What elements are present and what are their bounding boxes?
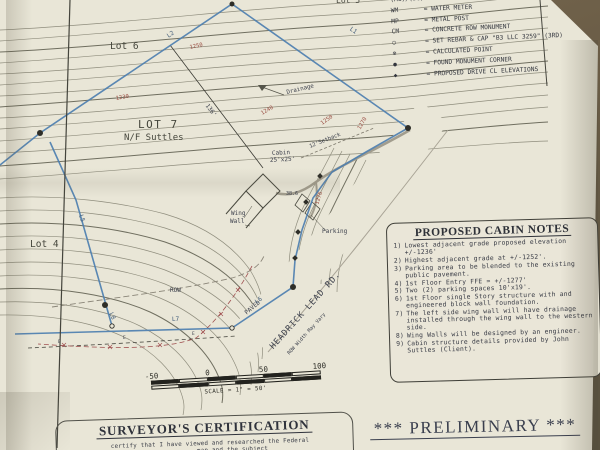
calculated-point-icon: ⊗ — [389, 50, 426, 58]
map-label-row: ROW — [170, 288, 181, 294]
tick-label: 100 — [312, 361, 326, 371]
map-label-lot-7: LOT 7 — [138, 119, 179, 130]
preliminary-stamp: *** PRELIMINARY *** — [356, 415, 594, 440]
legend-symbol: CM — [388, 28, 425, 36]
photographed-survey-plat: Lot 5 Lot 6 LOT 7 N/F Suttles Lot 4 Drai… — [0, 0, 600, 450]
map-label-lot-5: Lot 5 — [336, 0, 360, 5]
legend-label: = PROPOSED DRIVE CL ELEVATIONS — [426, 64, 595, 78]
map-label-lot-6: Lot 6 — [110, 42, 139, 52]
map-label-wing: Wing — [231, 211, 245, 217]
electric-line-mark-e1: E — [58, 341, 61, 346]
map-label-l7: L7 — [172, 317, 179, 323]
map-label-parking: Parking — [322, 229, 347, 235]
proposed-cabin-notes-box: PROPOSED CABIN NOTES 1)Lowest adjacent g… — [386, 217, 600, 383]
electric-line-mark-e3: E — [192, 333, 195, 338]
electric-line-mark-e2: E — [123, 337, 126, 342]
legend-symbol: (AG)/(BG) — [386, 0, 423, 4]
found-monument-icon: ● — [389, 61, 426, 69]
tie-line-136ft — [170, 45, 263, 168]
drive-elevation-icon: ◆ — [390, 71, 427, 79]
legend-symbol: MP — [387, 17, 424, 25]
map-label-wall: Wall — [230, 219, 244, 225]
note-item: 9)Cabin structure details provided by Jo… — [396, 335, 594, 355]
drainage-arrow — [258, 85, 284, 95]
map-label-dim-38-6: 38.6 — [286, 192, 298, 197]
legend: (AG)/(BG) = ABOVE GRADE AND BELOW GRADE … — [386, 0, 596, 84]
map-label-lot-4: Lot 4 — [30, 240, 59, 250]
tick-label: 0 — [205, 368, 210, 377]
fence-line — [38, 266, 252, 349]
map-label-lot-7-owner: N/F Suttles — [124, 134, 184, 143]
set-rebar-icon: ○ — [388, 39, 425, 47]
monument-markers — [37, 2, 411, 331]
legend-symbol: WM — [387, 7, 424, 15]
